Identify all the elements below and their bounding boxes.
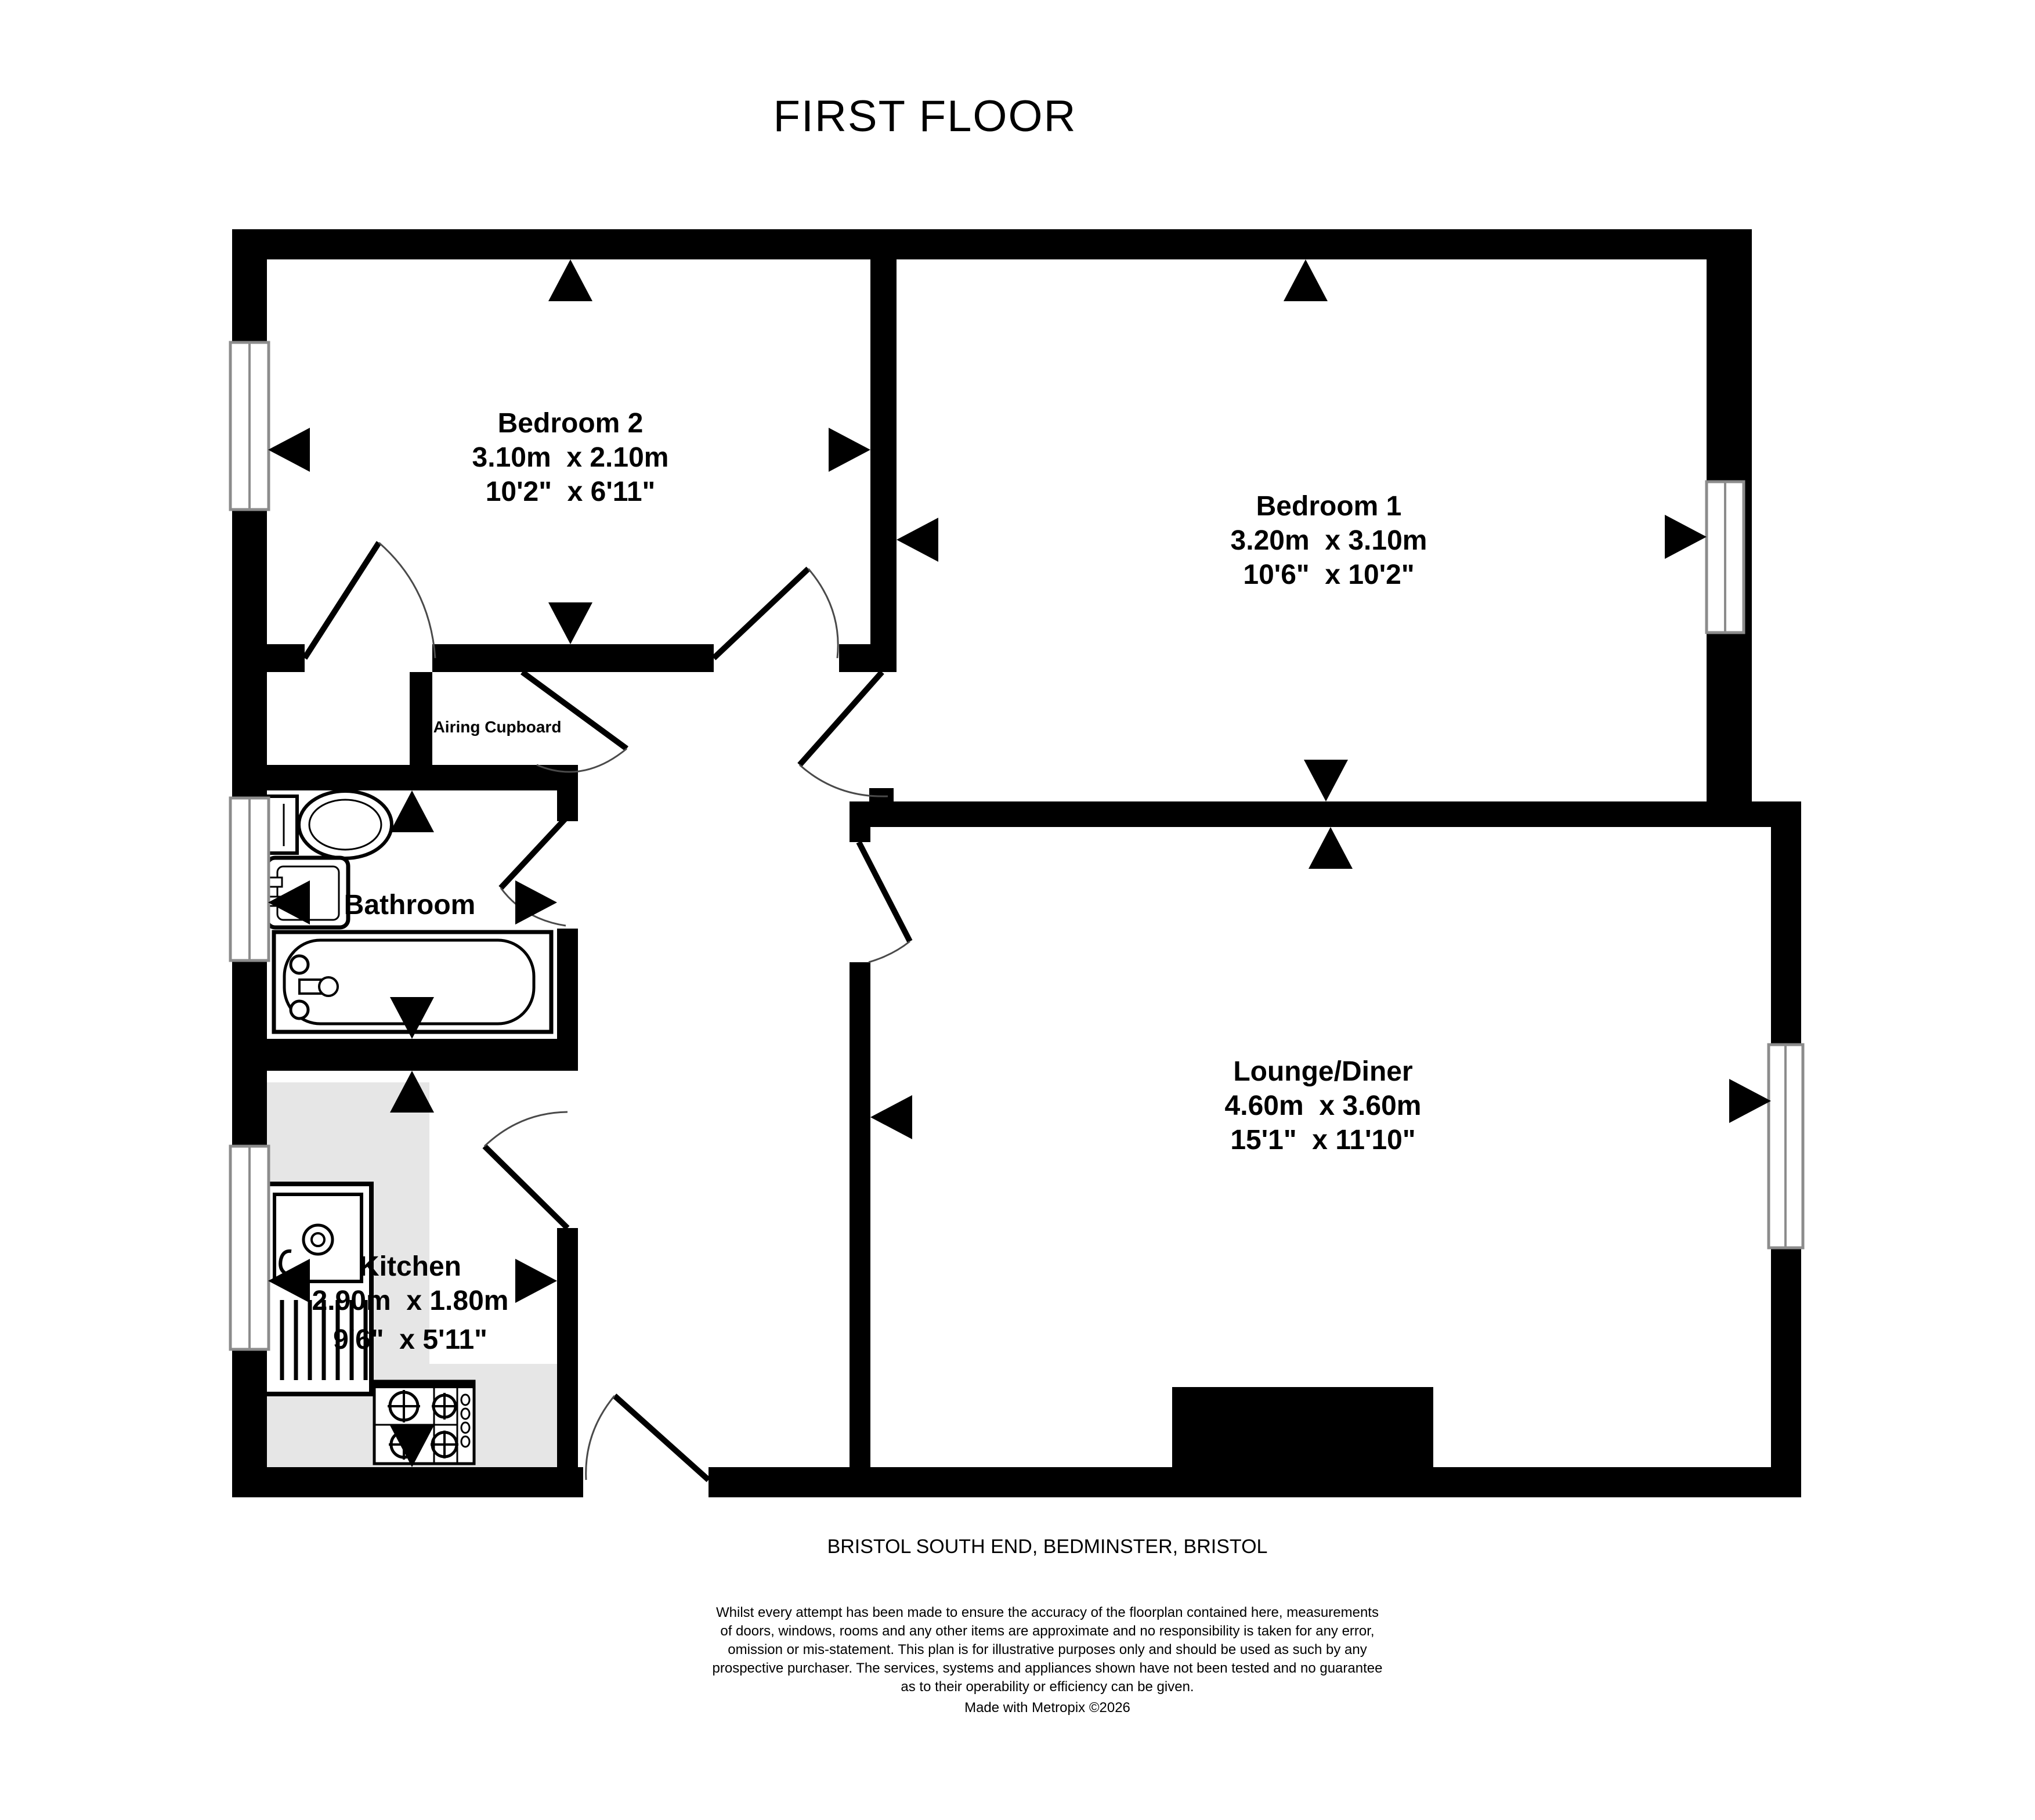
arrow-up-icon xyxy=(1284,259,1328,301)
floorplan-page: FIRST FLOOR xyxy=(0,0,2035,1820)
wall-bedroom2-bottom-b xyxy=(432,644,714,672)
disclaimer-line: as to their operability or efficiency ca… xyxy=(901,1679,1194,1695)
kitchen-sink-drain-inner xyxy=(312,1233,324,1246)
door-bedroom1 xyxy=(800,672,888,796)
wall-bathroom-top xyxy=(267,765,578,790)
wall-hall-divider-stub xyxy=(850,801,870,842)
door-lounge xyxy=(859,842,910,962)
wall-outer-bottom-left xyxy=(232,1467,583,1497)
footer: BRISTOL SOUTH END, BEDMINSTER, BRISTOL W… xyxy=(713,1536,1383,1716)
room-label-airing-cupboard: Airing Cupboard xyxy=(433,718,562,736)
toilet-bowl-inner xyxy=(309,800,381,850)
wall-bathroom-right-a xyxy=(557,790,578,821)
disclaimer-line: Whilst every attempt has been made to en… xyxy=(716,1605,1379,1620)
wall-bedroom-divider xyxy=(870,255,897,670)
floorplan-drawing: FIRST FLOOR xyxy=(0,0,2035,1820)
wall-outer-bottom-right xyxy=(709,1467,1801,1497)
arrow-left-icon xyxy=(268,428,310,472)
address-line: BRISTOL SOUTH END, BEDMINSTER, BRISTOL xyxy=(827,1536,1268,1558)
window-bathroom-left xyxy=(230,798,269,960)
sink-tap xyxy=(269,878,282,887)
window-bedroom1-right xyxy=(1707,482,1744,633)
arrow-down-icon xyxy=(548,602,592,644)
arrow-left-icon xyxy=(897,518,938,562)
stove-body xyxy=(374,1381,474,1464)
stove-icon xyxy=(374,1381,474,1464)
room-label-kitchen: Kitchen xyxy=(359,1251,461,1282)
room-label-bedroom1: Bedroom 1 xyxy=(1256,491,1402,522)
arrow-right-icon xyxy=(515,1259,557,1303)
wall-airing-left xyxy=(410,672,432,765)
room-dim-metric-lounge: 4.60m x 3.60m xyxy=(1225,1090,1422,1121)
arrow-left-icon xyxy=(870,1095,912,1139)
bathtub-tap xyxy=(291,1001,308,1019)
wall-bathroom-bottom xyxy=(267,1039,578,1071)
room-dim-metric-bedroom2: 3.10m x 2.10m xyxy=(472,442,669,473)
fireplace xyxy=(1172,1387,1433,1468)
room-dim-imperial-bedroom1: 10'6" x 10'2" xyxy=(1243,559,1414,590)
door-bedroom2 xyxy=(305,543,435,658)
room-dim-imperial-kitchen: 9'6" x 5'11" xyxy=(333,1324,487,1355)
wall-kitchen-right xyxy=(557,1228,578,1468)
disclaimer-line: omission or mis-statement. This plan is … xyxy=(728,1642,1367,1658)
door-kitchen xyxy=(485,1112,568,1228)
disclaimer-line: of doors, windows, rooms and any other i… xyxy=(720,1623,1374,1639)
toilet-cistern xyxy=(268,796,297,853)
room-dim-imperial-lounge: 15'1" x 11'10" xyxy=(1230,1125,1415,1155)
bathtub-tap xyxy=(291,956,308,973)
wall-bedroom2-bottom-c xyxy=(839,644,897,672)
room-label-lounge: Lounge/Diner xyxy=(1233,1056,1412,1087)
page-title: FIRST FLOOR xyxy=(773,92,1076,141)
arrow-right-icon xyxy=(829,428,870,472)
arrow-right-icon xyxy=(1729,1079,1771,1123)
arrow-up-icon xyxy=(390,790,434,832)
room-label-bedroom2: Bedroom 2 xyxy=(498,408,644,439)
arrow-down-icon xyxy=(1304,760,1348,801)
wall-hall-divider-lower xyxy=(850,962,870,1468)
wall-bedroom2-bottom-a xyxy=(267,644,305,672)
disclaimer-line: prospective purchaser. The services, sys… xyxy=(713,1660,1383,1676)
window-lounge-right xyxy=(1769,1045,1803,1248)
window-bedroom2-left xyxy=(230,342,269,510)
wall-divider-stub xyxy=(869,788,894,801)
stove-top-edge xyxy=(374,1381,474,1388)
toilet-icon xyxy=(268,791,392,858)
room-label-bathroom: Bathroom xyxy=(344,890,476,920)
disclaimer-credit: Made with Metropix ©2026 xyxy=(964,1700,1130,1716)
arrow-right-icon xyxy=(1665,515,1707,559)
room-dim-metric-bedroom1: 3.20m x 3.10m xyxy=(1231,525,1427,556)
wall-bathroom-right-b xyxy=(557,929,578,1039)
door-bedroom2-second xyxy=(714,569,838,658)
room-dim-metric-kitchen: 2.90m x 1.80m xyxy=(312,1285,509,1316)
arrow-up-icon xyxy=(1309,827,1353,869)
arrow-up-icon xyxy=(548,259,592,301)
wall-outer-top xyxy=(232,229,1752,259)
windows xyxy=(230,342,1803,1349)
bathtub-drain xyxy=(319,977,338,996)
window-kitchen-left xyxy=(230,1146,269,1349)
wall-lounge-top xyxy=(850,801,1801,827)
room-dim-imperial-bedroom2: 10'2" x 6'11" xyxy=(486,476,656,507)
door-entrance xyxy=(586,1396,709,1480)
